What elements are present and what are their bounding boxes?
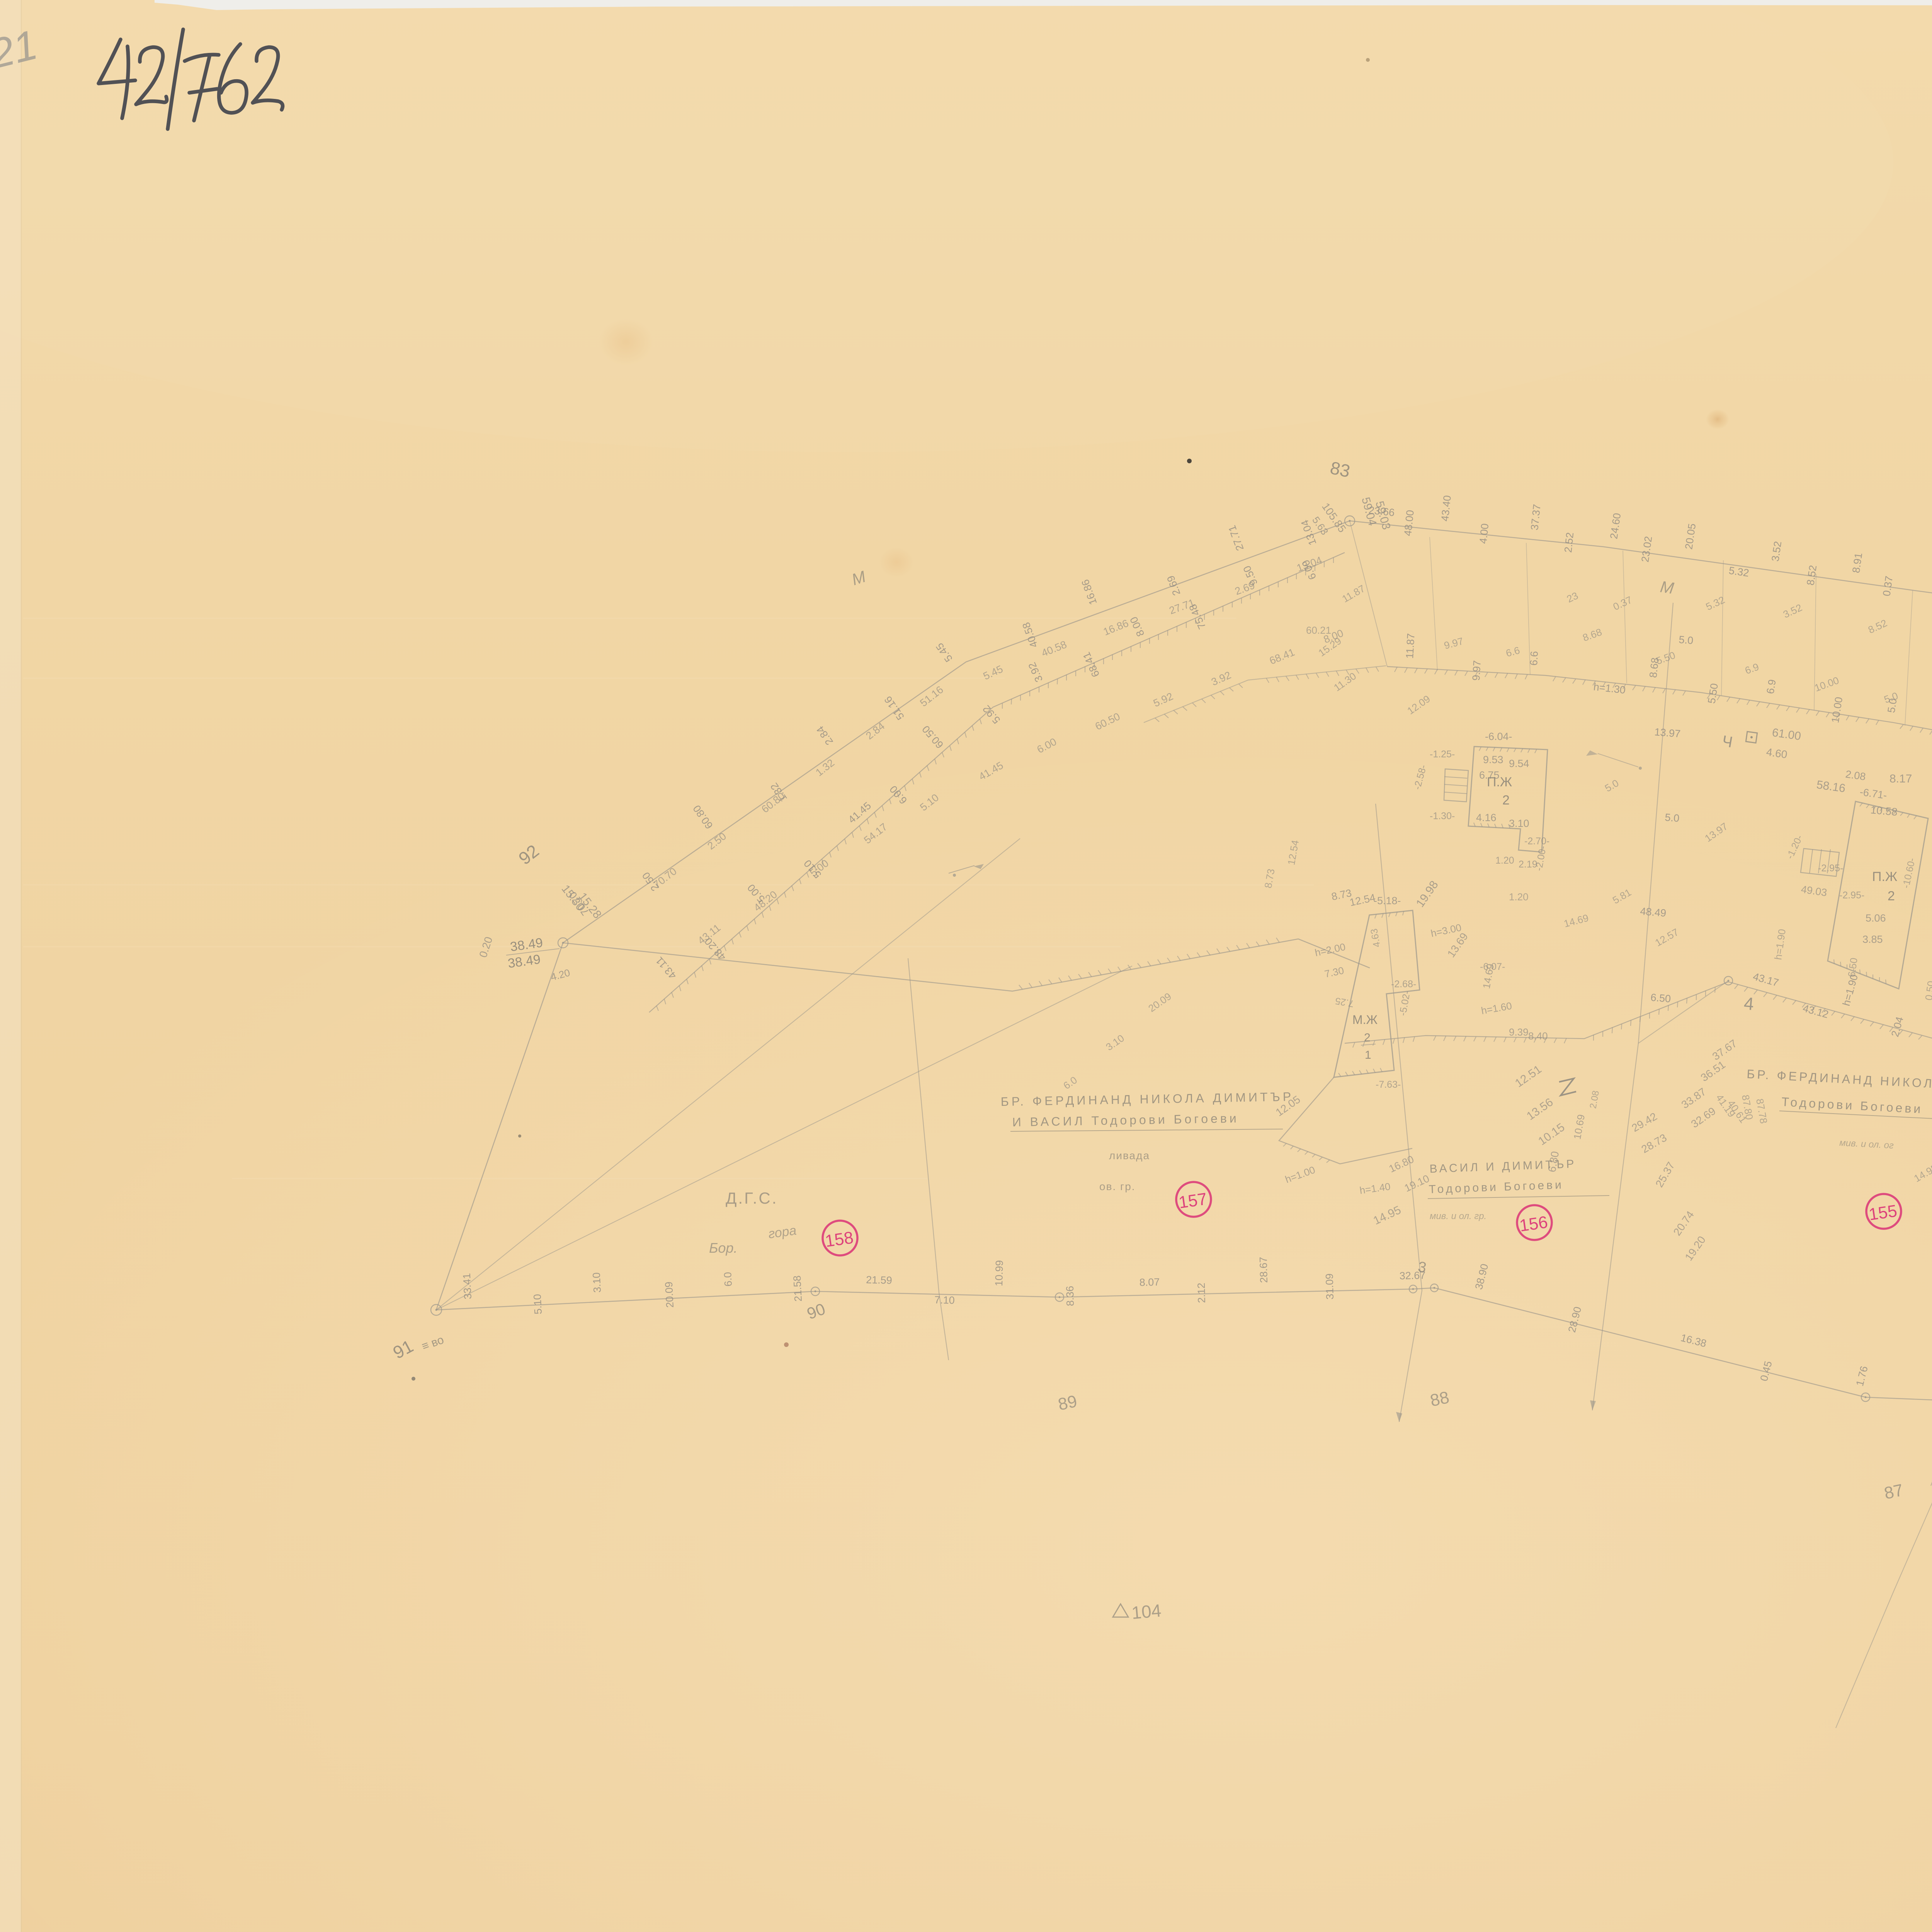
svg-text:-6.04-: -6.04- xyxy=(1485,731,1512,742)
svg-text:7.10: 7.10 xyxy=(934,1294,955,1306)
svg-text:3.85: 3.85 xyxy=(1862,934,1883,945)
svg-text:21.59: 21.59 xyxy=(866,1274,892,1286)
svg-text:-2.68-: -2.68- xyxy=(1391,979,1416,990)
svg-text:3.10: 3.10 xyxy=(1509,818,1529,829)
svg-text:Д.Г.С.: Д.Г.С. xyxy=(726,1189,778,1207)
svg-text:ов. гр.: ов. гр. xyxy=(1099,1180,1136,1192)
svg-text:8.07: 8.07 xyxy=(1139,1276,1160,1288)
svg-text:-2.95-: -2.95- xyxy=(1818,863,1843,874)
svg-text:-5.18-: -5.18- xyxy=(1374,895,1401,906)
svg-text:6.6: 6.6 xyxy=(1528,651,1540,666)
svg-text:155: 155 xyxy=(1867,1201,1898,1224)
svg-text:6.9: 6.9 xyxy=(1764,679,1778,695)
svg-text:-2.95-: -2.95- xyxy=(1839,890,1864,901)
svg-text:4.16: 4.16 xyxy=(1476,812,1497,823)
svg-text:-2.70-: -2.70- xyxy=(1524,836,1549,847)
svg-text:5.0: 5.0 xyxy=(1665,811,1680,824)
svg-text:8.17: 8.17 xyxy=(1889,772,1912,785)
svg-text:-1.25-: -1.25- xyxy=(1430,749,1455,760)
svg-text:21.58: 21.58 xyxy=(791,1275,804,1302)
svg-text:2: 2 xyxy=(1888,889,1895,903)
svg-text:1: 1 xyxy=(1365,1049,1371,1061)
svg-text:2: 2 xyxy=(1502,793,1510,808)
svg-text:158: 158 xyxy=(824,1228,855,1251)
svg-text:4: 4 xyxy=(1743,993,1755,1014)
svg-text:-1.30-: -1.30- xyxy=(1430,811,1455,821)
svg-text:60.21: 60.21 xyxy=(1306,624,1331,636)
svg-text:5.0: 5.0 xyxy=(1679,634,1694,646)
svg-text:5.06: 5.06 xyxy=(1866,912,1886,924)
svg-text:32.67: 32.67 xyxy=(1399,1269,1425,1282)
svg-text:89: 89 xyxy=(1056,1392,1079,1414)
svg-text:5.10: 5.10 xyxy=(531,1294,544,1315)
svg-text:3.10: 3.10 xyxy=(590,1272,603,1293)
svg-text:88: 88 xyxy=(1429,1388,1451,1410)
svg-text:-7.63-: -7.63- xyxy=(1376,1079,1401,1090)
svg-text:20.09: 20.09 xyxy=(663,1281,676,1308)
svg-text:87: 87 xyxy=(1883,1481,1905,1503)
svg-text:48.49: 48.49 xyxy=(1640,905,1667,919)
svg-text:10.99: 10.99 xyxy=(993,1260,1005,1286)
svg-text:1.20: 1.20 xyxy=(1495,855,1514,866)
svg-text:2: 2 xyxy=(1364,1031,1371,1044)
svg-text:13.97: 13.97 xyxy=(1654,726,1681,740)
svg-text:2.52: 2.52 xyxy=(1562,532,1576,553)
svg-text:8.36: 8.36 xyxy=(1064,1286,1076,1306)
svg-text:6.0: 6.0 xyxy=(722,1272,734,1287)
svg-text:М.Ж: М.Ж xyxy=(1352,1013,1378,1027)
svg-text:28.67: 28.67 xyxy=(1257,1257,1270,1283)
svg-text:6.75: 6.75 xyxy=(1479,769,1500,781)
svg-text:83: 83 xyxy=(1328,457,1352,481)
svg-text:П.Ж: П.Ж xyxy=(1872,869,1897,884)
svg-text:156: 156 xyxy=(1518,1213,1549,1235)
svg-text:мив. и ол. гр.: мив. и ол. гр. xyxy=(1430,1211,1486,1221)
svg-text:6.50: 6.50 xyxy=(1650,992,1672,1005)
svg-text:9.39: 9.39 xyxy=(1509,1026,1529,1038)
svg-text:1.20: 1.20 xyxy=(1509,891,1529,903)
svg-text:Бор.: Бор. xyxy=(709,1240,737,1256)
svg-text:11.87: 11.87 xyxy=(1404,633,1417,659)
svg-text:ливада: ливада xyxy=(1109,1150,1150,1162)
svg-text:2.19: 2.19 xyxy=(1519,859,1537,870)
svg-text:8.40: 8.40 xyxy=(1528,1030,1548,1042)
svg-text:9.54: 9.54 xyxy=(1509,758,1529,769)
svg-text:104: 104 xyxy=(1131,1600,1162,1622)
svg-text:2.12: 2.12 xyxy=(1196,1282,1207,1303)
svg-text:9.53: 9.53 xyxy=(1483,754,1503,765)
svg-text:10.58: 10.58 xyxy=(1870,804,1898,818)
svg-text:9.97: 9.97 xyxy=(1470,660,1483,681)
svg-text:31.09: 31.09 xyxy=(1323,1273,1336,1299)
svg-text:М: М xyxy=(1659,577,1675,597)
svg-text:33.41: 33.41 xyxy=(461,1273,474,1299)
svg-text:157: 157 xyxy=(1177,1189,1208,1212)
svg-text:4.00: 4.00 xyxy=(1477,523,1491,544)
